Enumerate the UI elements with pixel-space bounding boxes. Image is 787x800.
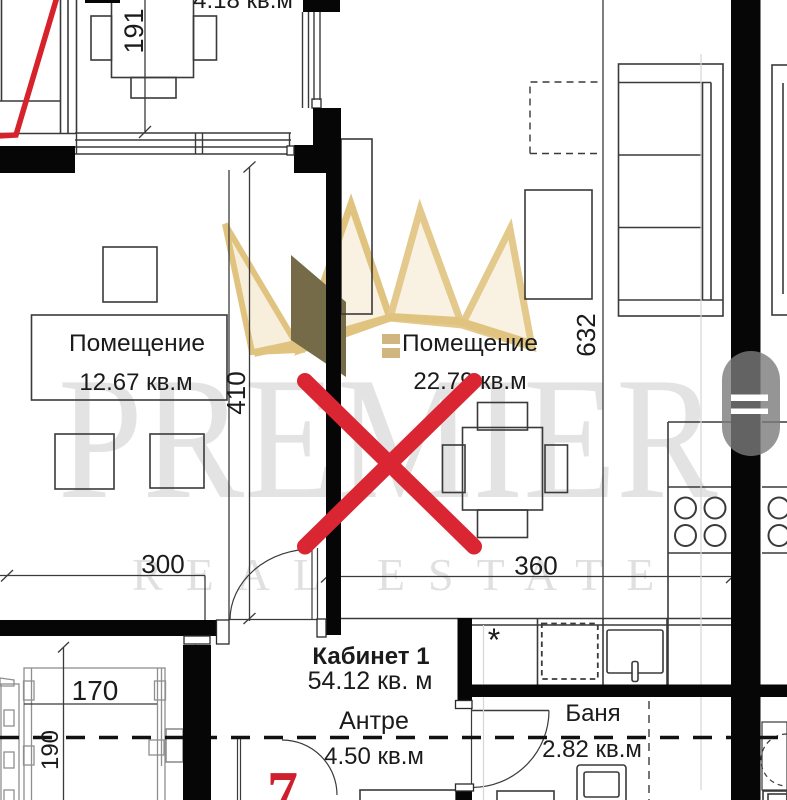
svg-text:300: 300 bbox=[141, 549, 184, 579]
svg-text:170: 170 bbox=[72, 675, 119, 706]
svg-text:360: 360 bbox=[514, 551, 557, 581]
svg-text:190: 190 bbox=[37, 730, 64, 770]
svg-text:Баня: Баня bbox=[565, 700, 620, 727]
svg-text:Помещение: Помещение bbox=[69, 330, 205, 357]
svg-text:2.82 кв.м: 2.82 кв.м bbox=[542, 736, 642, 763]
svg-text:410: 410 bbox=[221, 371, 251, 414]
svg-text:632: 632 bbox=[571, 313, 601, 356]
svg-text:Помещение: Помещение bbox=[402, 330, 538, 357]
svg-text:7: 7 bbox=[267, 760, 298, 800]
svg-text:4.18 кв.м: 4.18 кв.м bbox=[193, 0, 293, 14]
svg-text:Кабинет 1: Кабинет 1 bbox=[312, 643, 429, 670]
svg-text:54.12 кв. м: 54.12 кв. м bbox=[308, 667, 433, 695]
svg-text:191: 191 bbox=[119, 8, 149, 53]
svg-text:4.50 кв.м: 4.50 кв.м bbox=[324, 743, 424, 770]
svg-text:12.67 кв.м: 12.67 кв.м bbox=[79, 369, 192, 396]
svg-text:REAL ESTATE: REAL ESTATE bbox=[132, 549, 677, 600]
svg-text:Антре: Антре bbox=[339, 707, 409, 735]
svg-text:*: * bbox=[488, 622, 500, 658]
